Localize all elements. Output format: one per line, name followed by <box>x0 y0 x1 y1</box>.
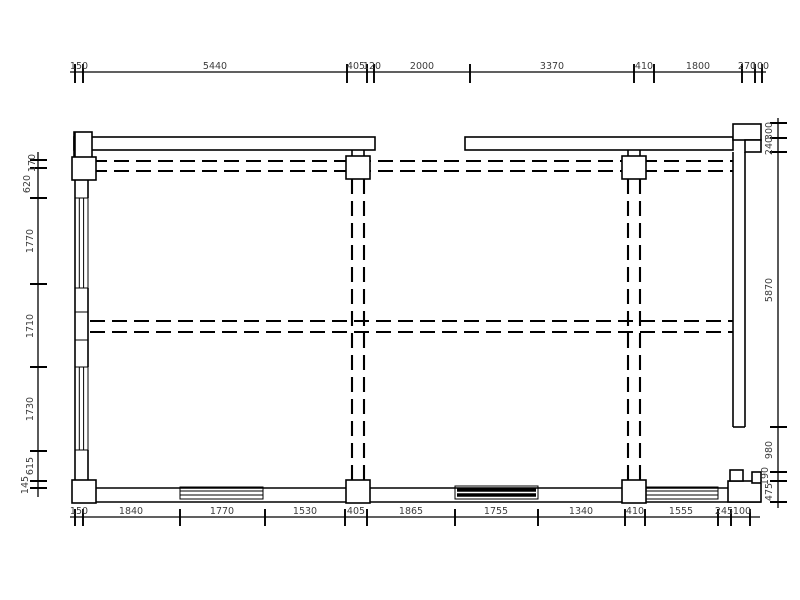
cad-floor-plan-canvas: 150 5440 405 120 2000 3370 410 1800 270 … <box>0 0 800 600</box>
top-dimension-line: 150 5440 405 120 2000 3370 410 1800 270 … <box>70 61 769 83</box>
dim-label: 980 <box>764 441 775 459</box>
dim-label: 1865 <box>399 506 423 517</box>
grid-dashed-mid <box>90 321 733 332</box>
dim-label: 240 <box>764 137 775 155</box>
dim-label: 2000 <box>410 61 434 72</box>
dim-label: 150 <box>70 506 88 517</box>
bottom-dimension-line: 150 1840 1770 1530 405 1865 1755 1340 41… <box>70 506 760 526</box>
top-beam-left-cap <box>74 132 92 159</box>
top-beam-right <box>465 137 733 157</box>
dim-label: 1840 <box>119 506 143 517</box>
right-wall-corner-top <box>733 124 761 140</box>
dim-label: 410 <box>626 506 644 517</box>
dim-label: 120 <box>363 61 381 72</box>
dim-label: 1770 <box>25 229 36 253</box>
bottom-wall <box>75 470 761 502</box>
columns <box>72 156 646 503</box>
dim-label: 3370 <box>540 61 564 72</box>
grid-dashed-col-b <box>352 179 364 481</box>
dim-label: 1755 <box>484 506 508 517</box>
dim-label: 475 <box>764 483 775 501</box>
dim-label: 615 <box>25 457 36 475</box>
column-top-b <box>346 156 370 179</box>
dim-label: 1730 <box>25 397 36 421</box>
dim-label: 1800 <box>686 61 710 72</box>
dim-label: 1555 <box>669 506 693 517</box>
dim-label: 620 <box>22 175 33 193</box>
dim-label: 190 <box>760 467 771 485</box>
dim-label: 1530 <box>293 506 317 517</box>
corner-block-bottom-right <box>728 481 761 502</box>
top-beam-left <box>74 132 375 159</box>
right-wall <box>733 124 761 483</box>
dim-label: 245 <box>715 506 733 517</box>
dim-label: 5440 <box>203 61 227 72</box>
dim-label: 405 <box>347 506 365 517</box>
left-wall <box>75 132 88 503</box>
right-wall-step <box>745 140 761 152</box>
dim-label: 150 <box>70 61 88 72</box>
right-dimension-line: 300 240 5870 980 190 475 <box>760 118 787 508</box>
grid-dashed-col-c <box>628 179 640 481</box>
column-bottom-b <box>346 480 370 503</box>
column-top-left <box>72 157 96 180</box>
left-window-2 <box>75 367 88 450</box>
dim-label: 1770 <box>210 506 234 517</box>
dim-label: 410 <box>635 61 653 72</box>
dim-label: 1340 <box>569 506 593 517</box>
left-window-1 <box>75 198 88 288</box>
dim-label: 5870 <box>764 278 775 302</box>
dim-label: 1710 <box>25 314 36 338</box>
floor-plan-drawing: 150 5440 405 120 2000 3370 410 1800 270 … <box>0 0 800 600</box>
left-dimension-line: 170 620 1770 1710 1730 615 145 <box>20 152 47 497</box>
dim-label: 100 <box>751 61 769 72</box>
column-bottom-left <box>72 480 96 503</box>
column-top-c <box>622 156 646 179</box>
column-bottom-c <box>622 480 646 503</box>
corner-block-bottom-right-step <box>730 470 743 481</box>
dim-label: 145 <box>20 476 31 494</box>
dim-label: 100 <box>733 506 751 517</box>
dim-label: 170 <box>27 154 38 172</box>
